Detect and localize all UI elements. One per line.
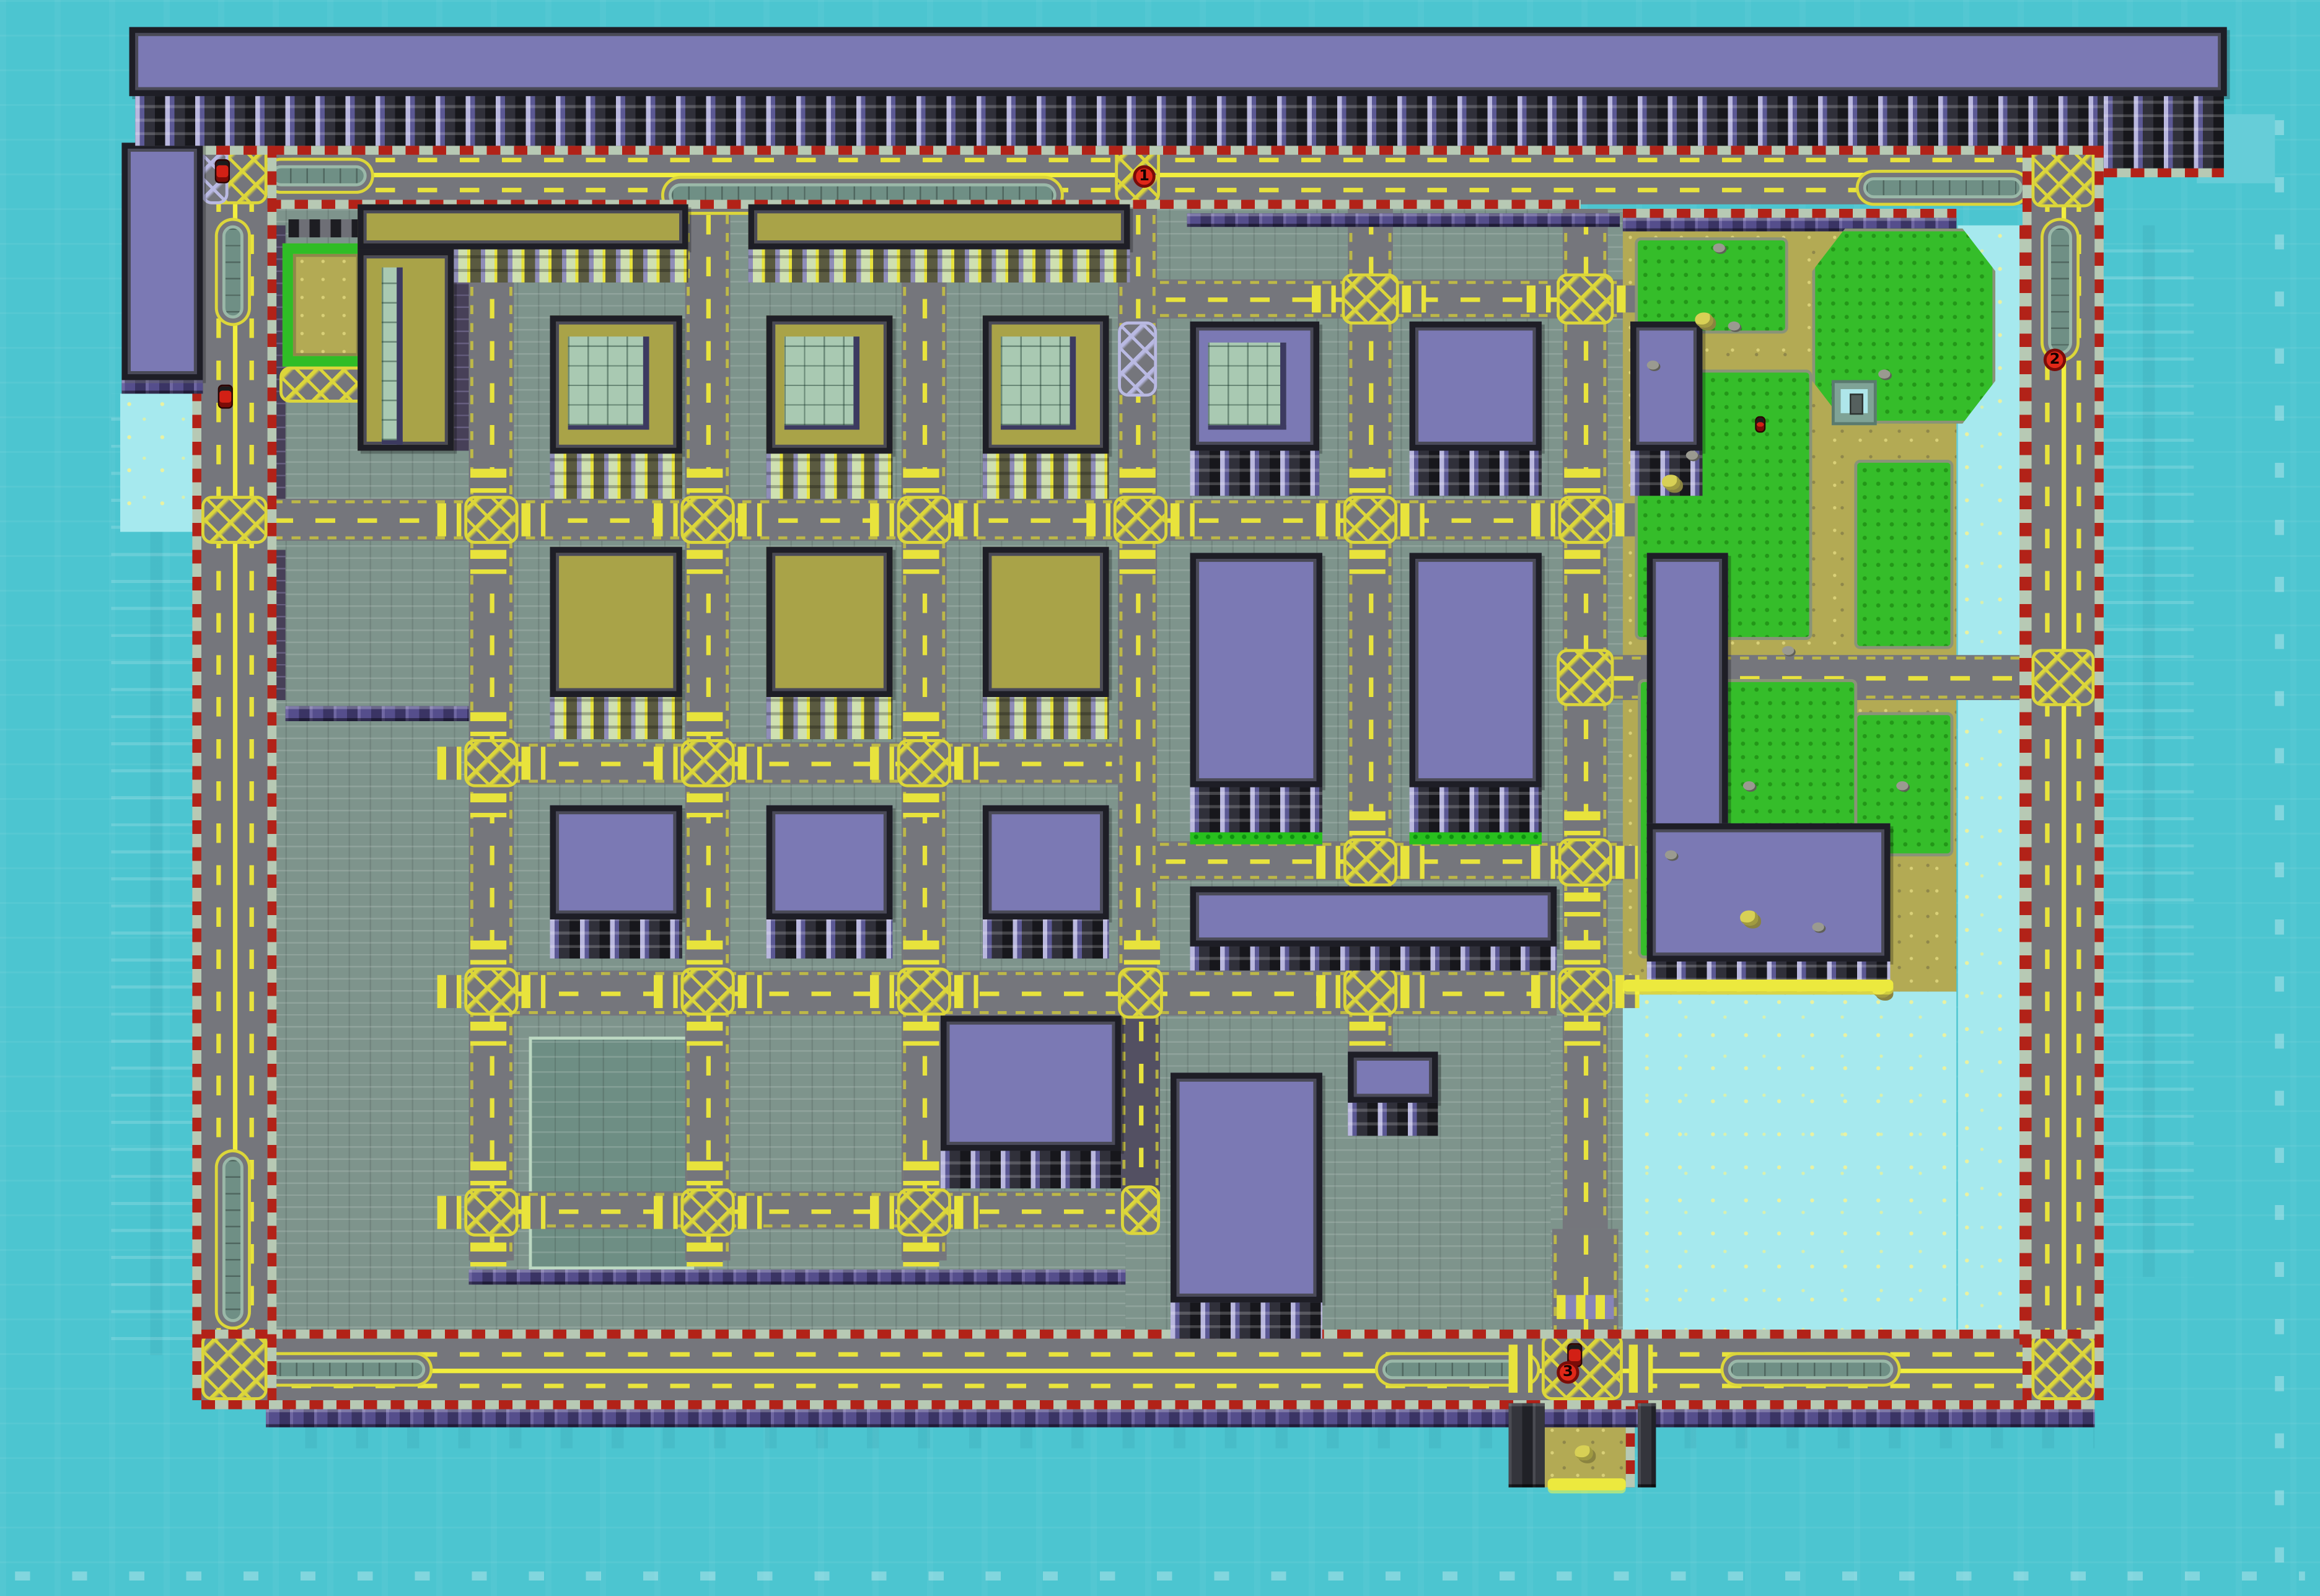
- olive-r2b: [767, 547, 893, 697]
- grid-cw-e-0-897: [1400, 503, 1425, 536]
- purple-wide-low: [1190, 887, 1557, 947]
- purple-r3a: [550, 805, 682, 919]
- street-h4: [469, 1191, 1121, 1229]
- olive-r1c-skylight: [1001, 336, 1076, 429]
- street-v6-marking: [1564, 215, 1567, 1223]
- facade-e1a: [1190, 450, 1320, 496]
- cw-alley-top: [1124, 940, 1160, 965]
- grid-cw-n-1-312: [470, 712, 506, 736]
- grid-cw-w-1-600: [870, 747, 894, 779]
- grid-cw-n-3-600: [903, 940, 939, 965]
- grid-cw-n-2-1040: [1564, 811, 1600, 835]
- purple-e1a: [1190, 322, 1320, 451]
- purple-e1a-skylight: [1208, 343, 1286, 430]
- junction-basin-v5: [1342, 273, 1399, 324]
- east-coast-water: [2104, 226, 2194, 1277]
- grid-cw-e-0-312: [521, 503, 545, 536]
- olive-r1b: [767, 315, 893, 454]
- street-h4-marking: [475, 1224, 1115, 1227]
- median-bottom-3: [1728, 1360, 1894, 1380]
- grid-cw-n-0-897: [1350, 469, 1386, 493]
- grid-junction-3-600: [897, 968, 951, 1016]
- curb-mega-east: [2104, 169, 2224, 178]
- purple-e1b: [1410, 322, 1542, 451]
- mega-facade-end: [2104, 96, 2224, 168]
- olive-bar-2: [749, 204, 1130, 250]
- grid-junction-4-312: [464, 1188, 518, 1237]
- olive-bar-leg: [358, 250, 454, 451]
- facade-r1b: [767, 454, 893, 499]
- grid-junction-1-312: [464, 739, 518, 787]
- grid-cw-n-3-1040: [1564, 940, 1600, 965]
- grid-cw-n-0-312: [470, 469, 506, 493]
- facade-e1b: [1410, 450, 1542, 496]
- left-causeway-marking: [216, 150, 221, 1394]
- junction-park-v6: [1557, 649, 1614, 706]
- cw-bridge-west: [1509, 1344, 1533, 1393]
- corner-awning: [289, 219, 358, 237]
- olive-bar-leg-skylight: [382, 268, 403, 445]
- facade-wharf-tall: [1171, 1302, 1322, 1338]
- grid-cw-s-4-600: [903, 1242, 939, 1266]
- olive-r1a: [550, 315, 682, 454]
- grid-junction-0-456: [680, 496, 734, 544]
- park-monument: [1832, 380, 1877, 425]
- ivy-tower-2: [1410, 832, 1542, 844]
- beach-edge: [1623, 980, 1893, 991]
- bridge-beach-edge: [1548, 1478, 1626, 1490]
- grid-junction-4-456: [680, 1188, 734, 1237]
- facade-wharf-west: [941, 1151, 1121, 1188]
- grid-cw-s-1-456: [687, 793, 723, 817]
- olive-r1c: [983, 315, 1109, 454]
- corner-garden: [283, 243, 370, 367]
- grid-cw-w-0-897: [1316, 503, 1340, 536]
- olive-bar-1: [358, 204, 688, 250]
- red-car-junction-nw[interactable]: [215, 159, 230, 183]
- curb-park-north: [1623, 209, 1956, 218]
- grid-junction-3-1040: [1558, 968, 1612, 1016]
- grid-cw-e-3-897: [1400, 975, 1425, 1008]
- grid-cw-e-0-600: [954, 503, 978, 536]
- pier-west: [1509, 1403, 1545, 1488]
- median-left-1: [222, 226, 244, 318]
- grid-cw-w-2-897: [1316, 846, 1340, 879]
- street-v6: [1563, 209, 1608, 1229]
- spawn-marker-1[interactable]: 1: [1133, 165, 1155, 188]
- bg-ripple-row: [15, 1571, 2305, 1581]
- street-h2-marking: [475, 761, 1112, 766]
- spawn-marker-3[interactable]: 3: [1557, 1361, 1579, 1383]
- city-map: 123: [0, 0, 2320, 1595]
- grid-junction-2-897: [1343, 838, 1397, 887]
- grid-cw-e-2-897: [1400, 846, 1425, 879]
- boulder-4: [1575, 1445, 1593, 1460]
- grid-cw-s-1-312: [470, 793, 506, 817]
- grid-cw-w-0-744: [1086, 503, 1110, 536]
- grid-junction-0-744: [1114, 496, 1167, 544]
- red-car-park[interactable]: [1755, 416, 1765, 433]
- boulder-0: [1695, 312, 1713, 327]
- park-rock-3: [1896, 781, 1908, 791]
- facade-r3c: [983, 919, 1109, 958]
- monument-slab: [1850, 393, 1863, 414]
- grid-cw-n-0-600: [903, 469, 939, 493]
- grid-junction-2-1040: [1558, 838, 1612, 887]
- grid-cw-s-3-600: [903, 1022, 939, 1046]
- street-v1-marking: [509, 215, 512, 1255]
- game-city-map-screenshot: { "title": "Top-down city game map", "pa…: [0, 0, 2320, 1596]
- grid-cw-n-0-456: [687, 469, 723, 493]
- facade-r1a: [550, 454, 682, 499]
- grid-cw-w-0-600: [870, 503, 894, 536]
- cw-basin-2: [1402, 286, 1426, 313]
- grid-cw-n-4-456: [687, 1161, 723, 1185]
- v4-garage-strip: [1118, 322, 1157, 397]
- median-top-3: [1863, 177, 2023, 198]
- grid-cw-w-1-456: [654, 747, 678, 779]
- street-v6-marking: [1603, 215, 1606, 1223]
- olive-r2c: [983, 547, 1109, 697]
- purple-r3b: [767, 805, 893, 919]
- grid-cw-e-0-744: [1171, 503, 1195, 536]
- grid-cw-e-0-456: [738, 503, 762, 536]
- grid-cw-s-3-1040: [1564, 1022, 1600, 1046]
- cw-bridge-east: [1629, 1344, 1653, 1393]
- grid-cw-w-3-600: [870, 975, 894, 1008]
- seawall-left-block: [286, 706, 469, 721]
- left-coast-shallow: [120, 393, 195, 532]
- median-bottom-1: [260, 1360, 426, 1380]
- street-h2-marking: [475, 780, 1112, 783]
- median-top-1: [270, 165, 366, 186]
- grid-junction-3-312: [464, 968, 518, 1016]
- grid-cw-w-2-1040: [1531, 846, 1555, 879]
- facade-wharf-east: [1348, 1103, 1438, 1136]
- grid-cw-n-0-744: [1120, 469, 1156, 493]
- spawn-marker-2[interactable]: 2: [2044, 349, 2066, 371]
- grid-junction-1-456: [680, 739, 734, 787]
- curb-right-east: [2094, 144, 2104, 1400]
- median-right-1: [2048, 226, 2072, 355]
- grid-cw-s-0-744: [1120, 550, 1156, 574]
- grid-cw-n-4-600: [903, 1161, 939, 1185]
- seawall-left-building: [121, 380, 203, 393]
- grid-cw-e-4-312: [521, 1196, 545, 1229]
- olive-r1b-skylight: [784, 336, 859, 429]
- grid-cw-n-3-312: [470, 940, 506, 965]
- grid-cw-w-0-312: [437, 503, 462, 536]
- facade-tower-1: [1190, 787, 1322, 833]
- grid-junction-0-312: [464, 496, 518, 544]
- median-left-2: [222, 1157, 244, 1322]
- facade-r2b: [767, 697, 893, 739]
- facade-wide-low: [1190, 947, 1557, 971]
- grid-cw-s-3-312: [470, 1022, 506, 1046]
- junction-alley-h4: [1121, 1185, 1160, 1235]
- junction-bridge: [1542, 1333, 1623, 1400]
- warehouse-roof: [529, 1037, 695, 1269]
- grid-cw-w-3-312: [437, 975, 462, 1008]
- grid-cw-s-0-600: [903, 550, 939, 574]
- left-causeway-marking: [250, 150, 254, 1394]
- grid-junction-0-897: [1343, 496, 1397, 544]
- curb-bottom-south: [201, 1400, 2094, 1410]
- grid-cw-e-3-312: [521, 975, 545, 1008]
- grid-cw-w-0-456: [654, 503, 678, 536]
- grid-cw-e-4-600: [954, 1196, 978, 1229]
- south-coast-water: [266, 1427, 2094, 1449]
- grid-cw-s-2-1040: [1564, 892, 1600, 916]
- grid-junction-3-456: [680, 968, 734, 1016]
- seawall-basin: [1187, 213, 1620, 227]
- boulder-1: [1662, 475, 1680, 489]
- purple-r3c: [983, 805, 1109, 919]
- park-rock-4: [1665, 850, 1677, 859]
- grid-cw-s-4-456: [687, 1242, 723, 1266]
- grid-cw-s-1-600: [903, 793, 939, 817]
- junction-basin-v6: [1557, 273, 1614, 324]
- ivy-tower-1: [1190, 832, 1322, 844]
- park-rock-8: [1743, 781, 1755, 791]
- grid-junction-4-600: [897, 1188, 951, 1237]
- grid-cw-n-2-897: [1350, 811, 1386, 835]
- bg-ripple-column: [2275, 120, 2284, 1563]
- street-h4-marking: [475, 1209, 1115, 1214]
- junction-park-east: [2031, 649, 2094, 706]
- curb-bottom-north: [201, 1330, 2094, 1339]
- mega-building: [130, 27, 2227, 97]
- garden-forecourt: [279, 367, 369, 403]
- grid-cw-w-3-1040: [1531, 975, 1555, 1008]
- olive-r1a-skylight: [568, 336, 649, 429]
- grid-cw-e-1-456: [738, 747, 762, 779]
- facade-bar1: [454, 250, 688, 283]
- wharf-west: [941, 1015, 1121, 1151]
- grid-cw-e-1-312: [521, 747, 545, 779]
- park-rock-9: [1647, 361, 1659, 370]
- grid-cw-n-0-1040: [1564, 469, 1600, 493]
- park-l-vertical: [1647, 553, 1728, 853]
- facade-r2c: [983, 697, 1109, 739]
- mega-facade: [135, 96, 2104, 146]
- grid-junction-1-600: [897, 739, 951, 787]
- grid-cw-e-2-1040: [1615, 846, 1640, 879]
- grid-cw-e-4-456: [738, 1196, 762, 1229]
- grid-cw-n-1-456: [687, 712, 723, 736]
- purple-tower-2: [1410, 553, 1542, 787]
- grid-cw-w-3-456: [654, 975, 678, 1008]
- cw-bridge-north: [1557, 1295, 1614, 1319]
- grid-cw-s-3-897: [1350, 1022, 1386, 1046]
- facade-tower-2: [1410, 787, 1542, 833]
- junction-left-h1: [201, 496, 268, 544]
- park-rock-5: [1812, 923, 1824, 932]
- wharf-east: [1348, 1051, 1438, 1102]
- park-l-foot: [1647, 823, 1891, 962]
- facade-r2a: [550, 697, 682, 739]
- pier-east: [1638, 1403, 1656, 1488]
- street-v2-marking: [726, 215, 729, 1255]
- cw-basin-3: [1527, 286, 1551, 313]
- west-coast-water: [111, 393, 198, 1355]
- junction-v4-h3: [1118, 968, 1163, 1019]
- grid-cw-s-4-312: [470, 1242, 506, 1266]
- park-rock-6: [1713, 243, 1725, 253]
- bottom-causeway-marking: [208, 1352, 2089, 1356]
- park-rock-2: [1782, 646, 1794, 655]
- curb-left-east: [268, 144, 277, 1400]
- facade-r3b: [767, 919, 893, 958]
- grid-cw-w-0-1040: [1531, 503, 1555, 536]
- grid-cw-n-4-312: [470, 1161, 506, 1185]
- junction-se: [2031, 1333, 2094, 1400]
- street-h2-marking: [475, 743, 1112, 747]
- olive-r2a: [550, 547, 682, 697]
- curb-park-east: [2019, 226, 2031, 1345]
- purple-e1c: [1630, 322, 1702, 451]
- wharf-tall: [1171, 1072, 1322, 1302]
- cw-basin-1: [1312, 286, 1336, 313]
- park-rock-0: [1728, 322, 1740, 331]
- facade-r1c: [983, 454, 1109, 499]
- grid-cw-e-3-600: [954, 975, 978, 1008]
- grid-cw-w-4-456: [654, 1196, 678, 1229]
- grid-cw-s-0-1040: [1564, 550, 1600, 574]
- grid-cw-n-1-600: [903, 712, 939, 736]
- park-grass-e1: [1854, 460, 1953, 649]
- grid-cw-w-3-897: [1316, 975, 1340, 1008]
- olive-leg-wall: [454, 283, 468, 451]
- west-tower: [121, 142, 203, 380]
- grid-cw-s-0-456: [687, 550, 723, 574]
- street-h4-marking: [475, 1193, 1115, 1196]
- right-causeway-marking: [2076, 150, 2081, 1394]
- grid-junction-0-1040: [1558, 496, 1612, 544]
- facade-bar2: [749, 250, 1130, 283]
- purple-tower-1: [1190, 553, 1322, 787]
- bottom-causeway-marking: [208, 1383, 2089, 1388]
- grid-cw-w-4-312: [437, 1196, 462, 1229]
- grid-junction-3-897: [1343, 968, 1397, 1016]
- grid-cw-e-3-456: [738, 975, 762, 1008]
- grid-cw-e-1-600: [954, 747, 978, 779]
- grid-cw-s-0-312: [470, 550, 506, 574]
- red-car-left-causeway[interactable]: [218, 385, 233, 409]
- street-h2: [469, 742, 1118, 784]
- grid-cw-n-3-456: [687, 940, 723, 965]
- seawall-causeway-south: [266, 1410, 2094, 1427]
- seawall-city-south: [469, 1269, 1126, 1284]
- grid-cw-s-3-456: [687, 1022, 723, 1046]
- grid-cw-w-1-312: [437, 747, 462, 779]
- park-rock-1: [1686, 450, 1698, 460]
- junction-sw: [201, 1333, 268, 1400]
- facade-r3a: [550, 919, 682, 958]
- grid-cw-w-4-600: [870, 1196, 894, 1229]
- boulder-2: [1740, 910, 1758, 925]
- street-v6-marking: [1584, 215, 1588, 1223]
- curb-facade-row: [135, 146, 2104, 155]
- grid-junction-0-600: [897, 496, 951, 544]
- park-rock-7: [1878, 370, 1890, 379]
- grid-cw-s-0-897: [1350, 550, 1386, 574]
